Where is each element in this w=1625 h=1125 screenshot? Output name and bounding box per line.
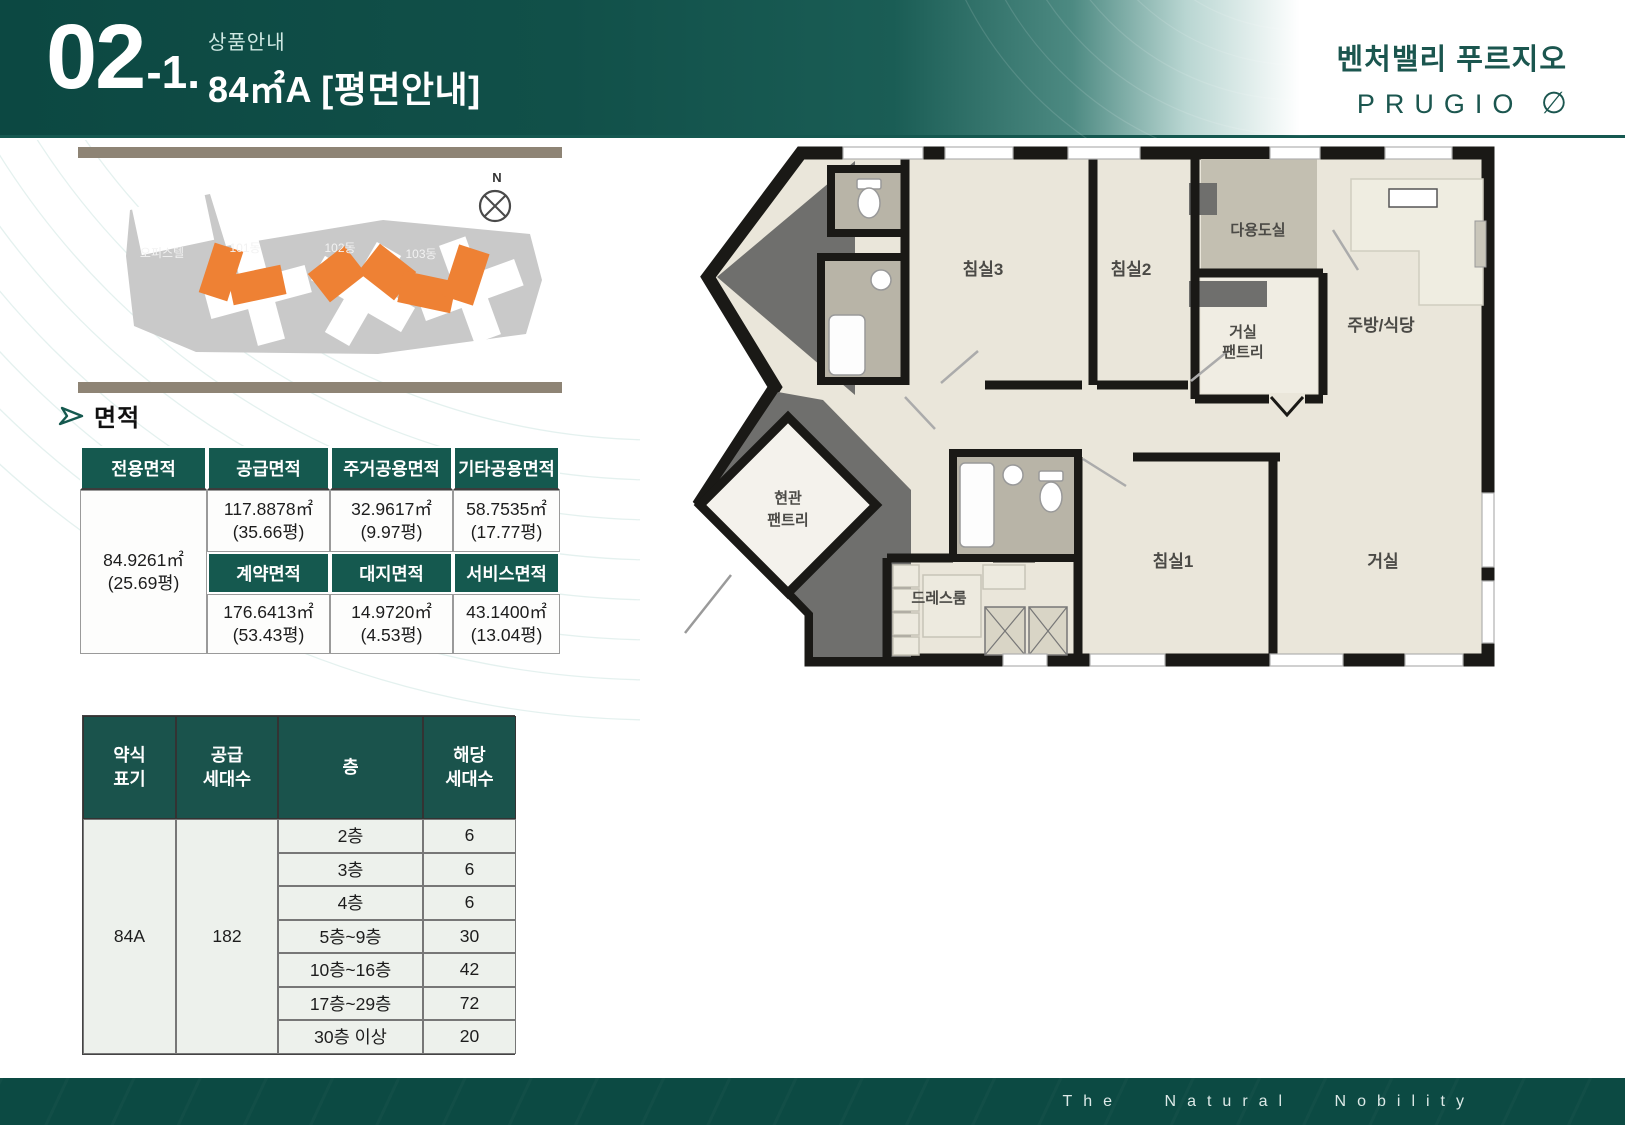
entrance-section-line [685,575,731,633]
label-building-102: 102동 [324,241,355,255]
label-building-103: 103동 [405,247,436,261]
washbasin-icon [871,270,891,290]
table-row-count: 42 [423,953,516,987]
units-header-count: 해당 세대수 [423,716,516,819]
table-row-count: 72 [423,987,516,1021]
room-label-bedroom2: 침실2 [1111,259,1152,279]
units-type-cell: 84A [83,819,176,1054]
page-header: 02 -1. 상품안내 84㎡A [평면안내] 벤처밸리 푸르지오 PRUGIO… [0,0,1625,138]
area-value-land: 14.9720㎡ (4.53평) [330,594,453,654]
bathtub2-icon [960,463,994,547]
duct-shaft-2 [1189,281,1267,307]
units-total-cell: 182 [176,819,278,1054]
table-row-floor: 5층~9층 [278,920,423,954]
room-label-utility: 다용도실 [1230,222,1285,239]
header-titles: 상품안내 84㎡A [평면안내] [208,26,481,113]
area-value-residential: 32.9617㎡ (9.97평) [330,490,453,552]
area-header-other-common: 기타공용면적 [453,446,560,490]
page-footer: The Natural Nobility [0,1078,1625,1125]
toilet2-tank-icon [1039,471,1063,481]
table-row-floor: 4층 [278,886,423,920]
units-header-floor: 층 [278,716,423,819]
bathtub-icon [829,315,865,375]
toilet-icon [858,188,880,218]
room-label-pantry-line2: 팬트리 [1222,344,1263,361]
table-row-floor: 30층 이상 [278,1020,423,1054]
arrow-bullet-icon [58,406,84,426]
compass-n-label: N [492,170,501,185]
area-header-exclusive: 전용면적 [80,446,207,490]
area-value-supply: 117.8878㎡ (35.66평) [207,490,330,552]
area-header-land: 대지면적 [330,552,453,594]
brand-logo: 벤처밸리 푸르지오 PRUGIO ∅ [1337,36,1568,121]
section-number: 02 -1. [46,14,200,101]
units-table: 약식 표기 공급 세대수 층 해당 세대수 84A 182 2층 6 3층 6 … [82,715,515,1055]
area-header-supply: 공급면적 [207,446,330,490]
room-label-entry-line1: 현관 [774,490,802,507]
area-header-service: 서비스면적 [453,552,560,594]
area-section-title-row: 면적 [58,398,140,433]
area-header-contract: 계약면적 [207,552,330,594]
brand-name-korean: 벤처밸리 푸르지오 [1337,36,1568,78]
footer-slogan: The Natural Nobility [1063,1093,1476,1111]
area-section-title: 면적 [94,398,140,433]
room-label-dressroom: 드레스룸 [911,590,966,607]
compass-icon: N [480,170,510,221]
area-header-residential-common: 주거공용면적 [330,446,453,490]
area-value-service: 43.1400㎡ (13.04평) [453,594,560,654]
brand-name-english: PRUGIO ∅ [1337,86,1568,121]
table-row-count: 20 [423,1020,516,1054]
cooktop-icon [1389,189,1437,207]
brochure-page: 02 -1. 상품안내 84㎡A [평면안내] 벤처밸리 푸르지오 PRUGIO… [0,0,1625,1125]
table-row-count: 6 [423,886,516,920]
header-category: 상품안내 [208,26,481,55]
units-header-supply-count: 공급 세대수 [176,716,278,819]
table-row-floor: 3층 [278,853,423,887]
utility-room-floor [1201,159,1317,271]
room-label-entry-line2: 팬트리 [767,512,808,529]
room-label-living: 거실 [1367,552,1398,571]
table-row-count: 6 [423,819,516,853]
units-header-type: 약식 표기 [83,716,176,819]
label-officetel: 오피스텔 [140,246,184,260]
area-value-contract: 176.6413㎡ (53.43평) [207,594,330,654]
area-table: 전용면적 공급면적 주거공용면적 기타공용면적 84.9261㎡ (25.69평… [80,446,560,654]
table-row-count: 6 [423,853,516,887]
table-row-floor: 17층~29층 [278,987,423,1021]
brand-symbol-icon: ∅ [1541,87,1567,120]
area-value-other: 58.7535㎡ (17.77평) [453,490,560,552]
toilet2-icon [1040,482,1062,512]
page-title: 84㎡A [평면안내] [208,61,481,113]
table-row-floor: 10층~16층 [278,953,423,987]
room-label-bedroom1: 침실1 [1153,551,1194,571]
section-number-main: 02 [46,14,144,101]
floor-plan: 침실3 침실2 다용도실 거실 팬트리 주방/식당 현관 팬트리 드레스룸 침실… [683,145,1498,675]
site-plan-map: 오피스텔 101동 102동 103동 N [78,160,562,380]
site-plan-top-bar [78,147,562,158]
decorative-curves-header [830,0,1310,138]
site-plan-bottom-bar [78,382,562,393]
room-label-pantry-line1: 거실 [1229,324,1257,341]
fridge-icon [1475,221,1486,267]
washbasin2-icon [1003,465,1023,485]
area-value-exclusive: 84.9261㎡ (25.69평) [80,490,207,654]
label-building-101: 101동 [229,241,260,255]
table-row-count: 30 [423,920,516,954]
room-label-bedroom3: 침실3 [963,259,1004,279]
section-number-suffix: -1. [146,45,200,99]
room-label-kitchen: 주방/식당 [1347,316,1415,335]
table-row-floor: 2층 [278,819,423,853]
